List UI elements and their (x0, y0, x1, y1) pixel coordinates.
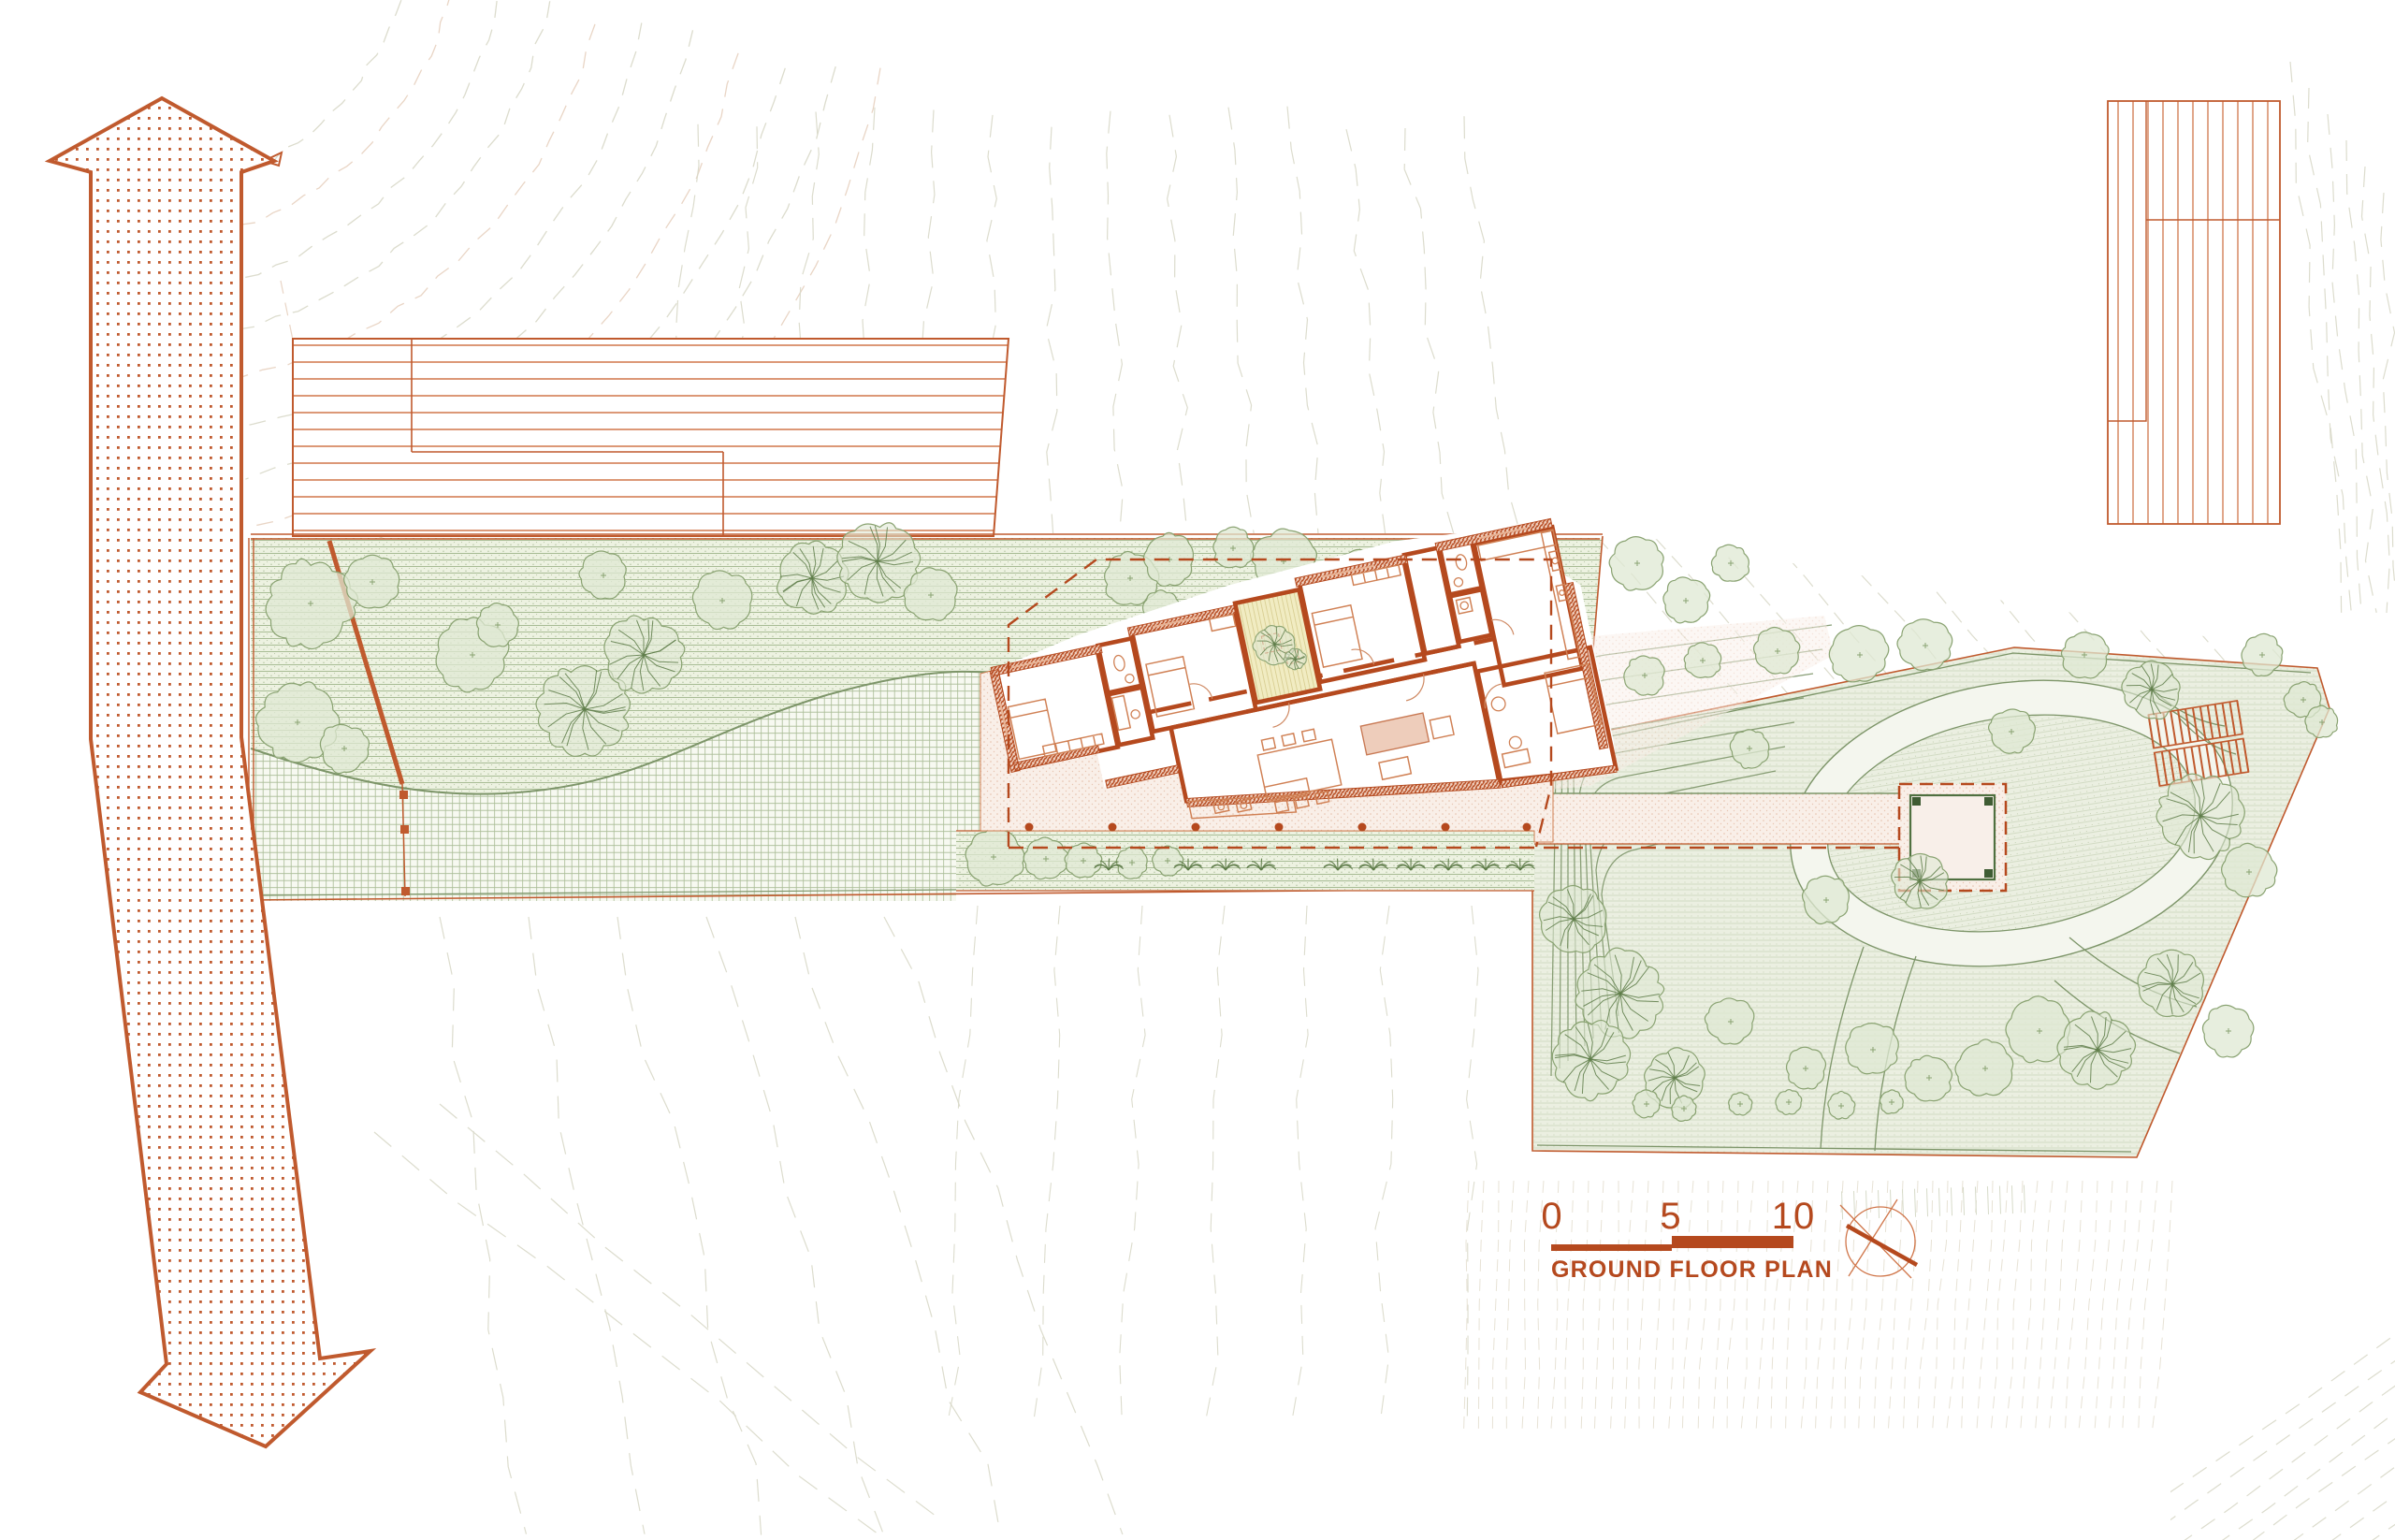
scale-label-5: 5 (1660, 1196, 1681, 1237)
site-plan-drawing: 0 5 10 GROUND FLOOR PLAN (0, 0, 2395, 1540)
scale-bar-segment-thin (1551, 1244, 1672, 1251)
neighbor-building-roof-top-right (2108, 101, 2280, 524)
site-plan-page: 0 5 10 GROUND FLOOR PLAN (0, 0, 2395, 1540)
drawing-title-label: GROUND FLOOR PLAN (1551, 1257, 1833, 1283)
walkway-to-pavilion (1534, 793, 1901, 844)
scale-label-0: 0 (1541, 1196, 1562, 1237)
scale-label-10: 10 (1772, 1196, 1816, 1237)
planting-strip (956, 827, 1535, 891)
scale-bar-segment-thick (1672, 1236, 1793, 1248)
